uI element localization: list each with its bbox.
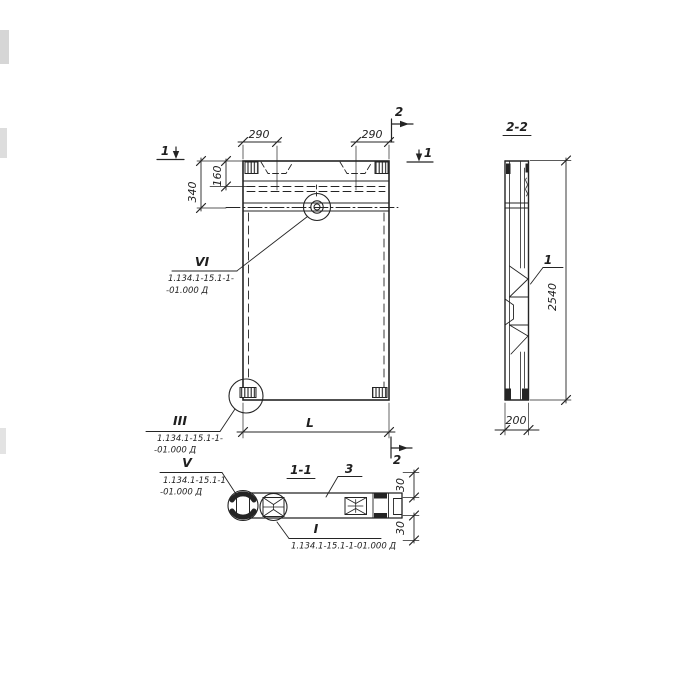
callout-i-num: I [314,521,319,536]
section-mark-2-bottom-label: 2 [393,453,401,467]
panel-outline [243,161,389,400]
panel-hidden-edges [249,185,385,387]
callout-v: V 1.134.1-15.1-1 -01.000 Д [160,455,236,498]
bar-right-end [373,493,402,518]
section-mark-2-top: 2 [392,105,414,142]
part-3-callout: 3 [326,462,362,497]
dim-2540: 2540 [530,156,571,405]
dim-L: L [237,403,395,438]
dim-2540-label: 2540 [546,283,559,311]
part-1-label: 1 [544,253,552,267]
detail-vi-node [237,194,331,271]
detail-iii-node [220,379,263,432]
dim-200: 200 [495,403,539,435]
section-2-2-view: 2-2 [495,120,571,435]
technical-drawing: 290 290 340 160 [0,0,700,700]
callout-v-num: V [182,455,193,470]
section-mark-1-right-label: 1 [424,146,432,160]
joint-key-detail [505,266,528,354]
leader-line-vi [237,217,308,271]
dim-340-label: 340 [186,182,199,203]
dim-30-bottom: 30 [394,511,419,545]
dim-160-label: 160 [211,166,224,187]
leader-line-iii [220,409,235,432]
loop-section-hatch-top [506,164,511,175]
end-hatch-bottom [374,513,387,518]
callout-vi-line1: 1.134.1-15.1-1- [168,274,234,284]
section-mark-1-right: 1 [407,146,433,162]
callout-i-line1: 1.134.1-15.1-1-01.000 Д [291,542,396,552]
callout-v-line2: -01.000 Д [160,488,203,498]
section-2-2-title: 2-2 [506,120,528,134]
foot-hatch-right [522,389,528,400]
callout-vi-line2: -01.000 Д [166,286,209,296]
dim-30-bottom-label: 30 [394,521,407,535]
part-3-label: 3 [345,462,353,476]
dim-30-top: 30 [394,468,419,502]
dim-30-top-label: 30 [394,478,407,492]
loop-section-hatch-top2 [526,164,530,173]
loop-anchor-hatches [240,162,388,398]
dim-L-label: L [306,416,314,430]
end-hatch-top [374,494,387,499]
dim-200-label: 200 [506,414,527,427]
section-1-1-title: 1-1 [290,463,312,477]
callout-iii-num: III [173,413,187,428]
section-mark-1-left: 1 [157,144,184,160]
detail-v-node [228,491,258,521]
callout-vi: VI 1.134.1-15.1-1- -01.000 Д [166,254,237,296]
callout-iii: III 1.134.1-15.1-1- -01.000 Д [146,413,223,456]
break-squiggle [526,178,528,196]
panel-top-band-lines [226,181,398,211]
section-mark-2-top-label: 2 [395,105,403,119]
lifting-recesses [261,162,372,174]
section-1-1-body [228,491,402,521]
dim-290-left-label: 290 [249,128,270,141]
foot-hatch-left [506,389,512,400]
keyway-detail [345,498,367,515]
part-1-callout: 1 [531,253,564,284]
detail-i-node [260,494,287,521]
section-1-1-view: 1-1 [160,455,419,552]
callout-v-line1: 1.134.1-15.1-1 [163,476,226,486]
leader-line-i [277,522,289,539]
section-mark-2-bottom: 2 [391,437,412,467]
callout-i: I 1.134.1-15.1-1-01.000 Д [277,521,396,552]
callout-iii-line1: 1.134.1-15.1-1- [157,434,223,444]
loop-hatch-top-right [375,162,388,174]
loop-hatch-bottom-left [240,388,256,398]
callout-vi-num: VI [195,254,210,269]
section-2-2-body [505,161,529,400]
callout-iii-line2: -01.000 Д [154,446,197,456]
dim-290-right-label: 290 [362,128,383,141]
elevation-view: 290 290 340 160 [146,105,433,467]
leader-line-part-3 [326,477,338,498]
loop-hatch-bottom-right [373,388,388,398]
section-mark-1-left-label: 1 [161,144,169,158]
scan-artifacts [0,30,9,454]
leader-line-part-1 [531,268,544,285]
drawing-sheet: 290 290 340 160 [0,0,700,700]
loop-hatch-top-left [245,162,258,174]
